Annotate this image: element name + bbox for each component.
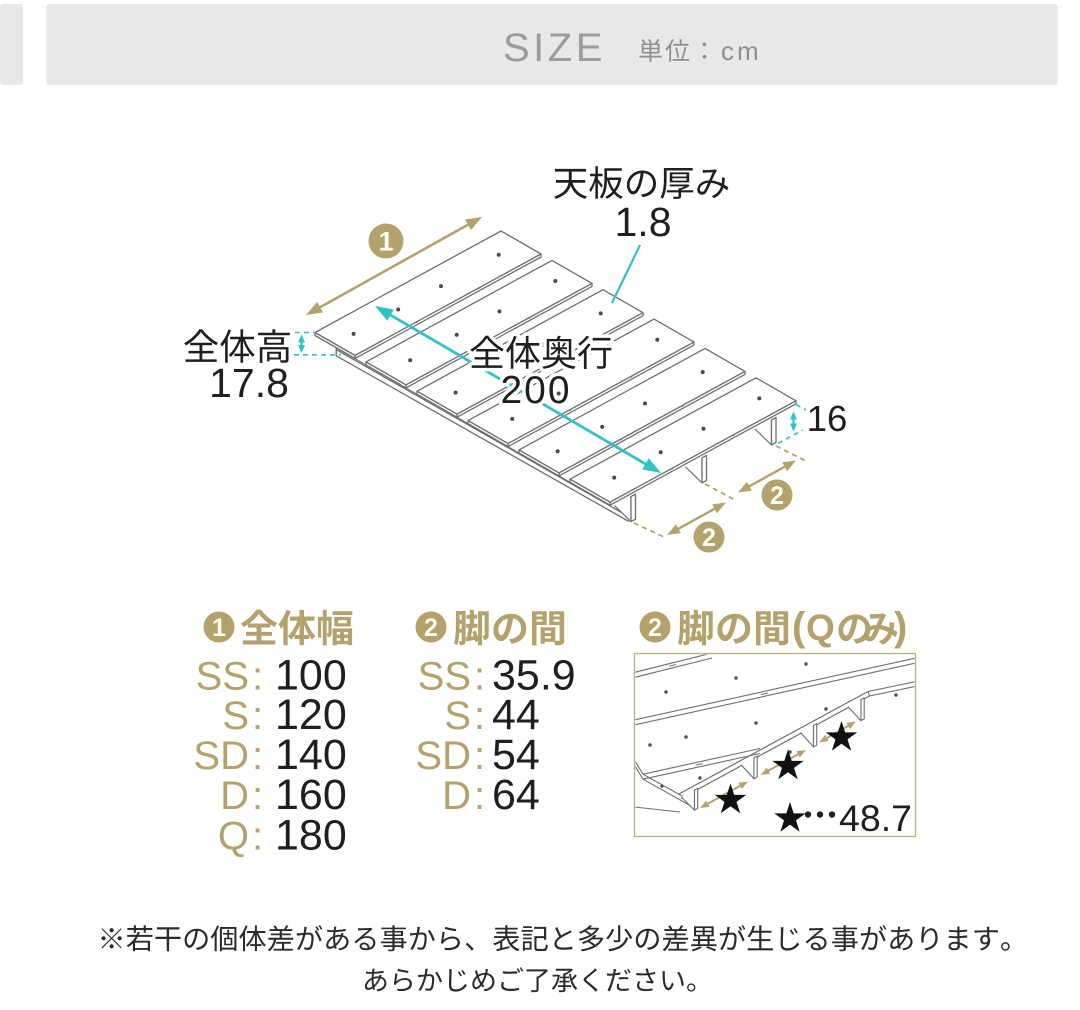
svg-text:Q: Q xyxy=(806,607,835,648)
svg-text:SD: SD xyxy=(193,734,249,778)
svg-text:1: 1 xyxy=(378,227,393,257)
svg-text:D: D xyxy=(220,774,249,818)
svg-text:2: 2 xyxy=(424,614,438,642)
svg-text::: : xyxy=(252,694,263,738)
svg-text:D: D xyxy=(442,774,471,818)
svg-text:SD: SD xyxy=(415,734,471,778)
svg-text:48.7: 48.7 xyxy=(839,797,912,839)
svg-text::: : xyxy=(474,774,485,818)
svg-text:2: 2 xyxy=(770,482,784,510)
svg-text:Q: Q xyxy=(218,815,249,859)
svg-text:180: 180 xyxy=(275,812,347,860)
svg-text::: : xyxy=(252,774,263,818)
svg-text:200: 200 xyxy=(500,369,571,412)
svg-text:): ) xyxy=(894,605,907,649)
svg-text::: : xyxy=(474,655,485,699)
svg-text:17.8: 17.8 xyxy=(209,360,289,406)
svg-text:SS: SS xyxy=(418,655,471,699)
svg-text:(: ( xyxy=(792,605,806,649)
svg-text:2: 2 xyxy=(702,524,716,552)
svg-text:16: 16 xyxy=(807,398,848,439)
svg-text::: : xyxy=(252,815,263,859)
svg-text:1.8: 1.8 xyxy=(615,199,672,245)
svg-text:S: S xyxy=(444,694,471,738)
svg-text:2: 2 xyxy=(648,614,662,642)
svg-text:64: 64 xyxy=(492,771,540,819)
svg-text::: : xyxy=(474,734,485,778)
svg-text::: : xyxy=(252,734,263,778)
svg-text:S: S xyxy=(222,694,249,738)
svg-text:cm: cm xyxy=(721,36,762,66)
svg-text::: : xyxy=(474,694,485,738)
svg-text:SIZE: SIZE xyxy=(503,26,606,70)
svg-text::: : xyxy=(252,655,263,699)
svg-text:1: 1 xyxy=(212,614,226,642)
svg-text:SS: SS xyxy=(196,655,249,699)
